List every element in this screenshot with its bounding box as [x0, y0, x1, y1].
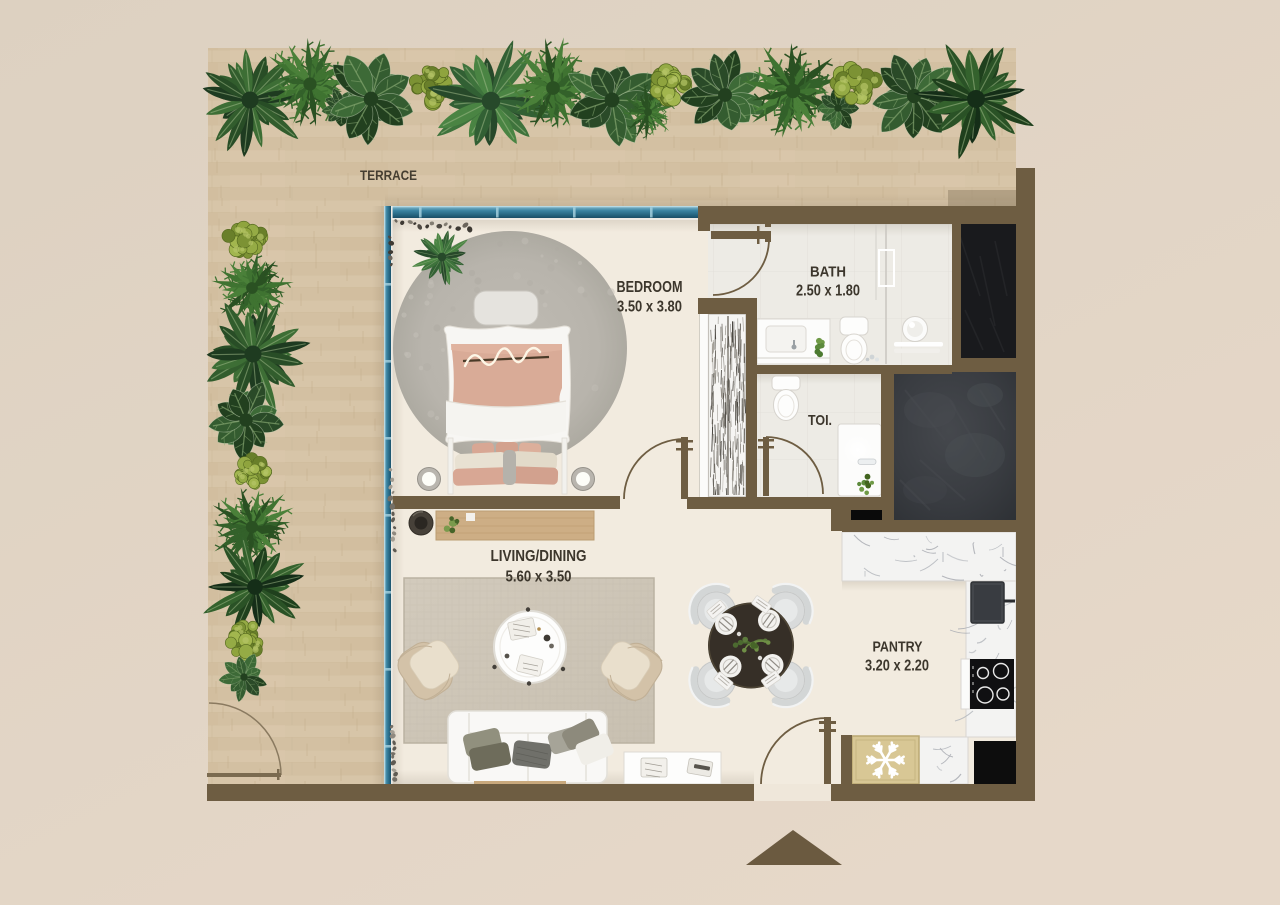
svg-text:BEDROOM: BEDROOM [617, 279, 683, 296]
svg-text:2.50 x 1.80: 2.50 x 1.80 [796, 283, 860, 300]
svg-text:PANTRY: PANTRY [873, 639, 923, 656]
svg-text:5.60 x 3.50: 5.60 x 3.50 [506, 569, 572, 586]
svg-text:BATH: BATH [810, 264, 846, 281]
svg-text:LIVING/DINING: LIVING/DINING [491, 548, 587, 565]
svg-text:TOI.: TOI. [808, 412, 832, 429]
svg-text:TERRACE: TERRACE [360, 167, 417, 183]
svg-text:3.50 x 3.80: 3.50 x 3.80 [617, 299, 682, 316]
svg-text:3.20 x 2.20: 3.20 x 2.20 [865, 658, 929, 675]
